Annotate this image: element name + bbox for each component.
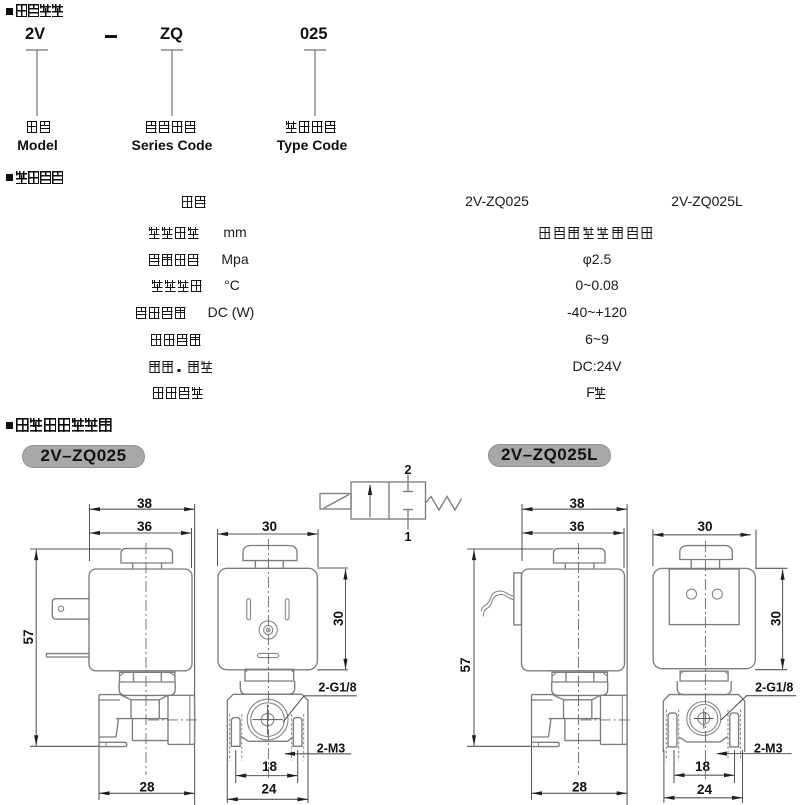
svg-text:57: 57 [21,629,36,644]
svg-text:36: 36 [569,519,585,534]
svg-text:18: 18 [695,759,711,774]
svg-text:2-G1/8: 2-G1/8 [755,681,793,695]
svg-text:38: 38 [137,496,153,511]
svg-text:57: 57 [458,657,473,672]
svg-text:2: 2 [405,463,412,477]
svg-text:38: 38 [569,496,585,511]
svg-text:36: 36 [137,519,153,534]
svg-text:28: 28 [572,780,588,795]
svg-text:1: 1 [405,530,412,544]
svg-text:18: 18 [262,759,278,774]
svg-text:30: 30 [262,519,277,534]
svg-text:30: 30 [331,611,346,626]
svg-text:24: 24 [261,782,277,797]
svg-text:24: 24 [697,782,713,797]
svg-text:30: 30 [769,611,784,626]
svg-text:2-G1/8: 2-G1/8 [318,681,356,695]
svg-text:30: 30 [697,519,712,534]
svg-text:28: 28 [139,780,155,795]
